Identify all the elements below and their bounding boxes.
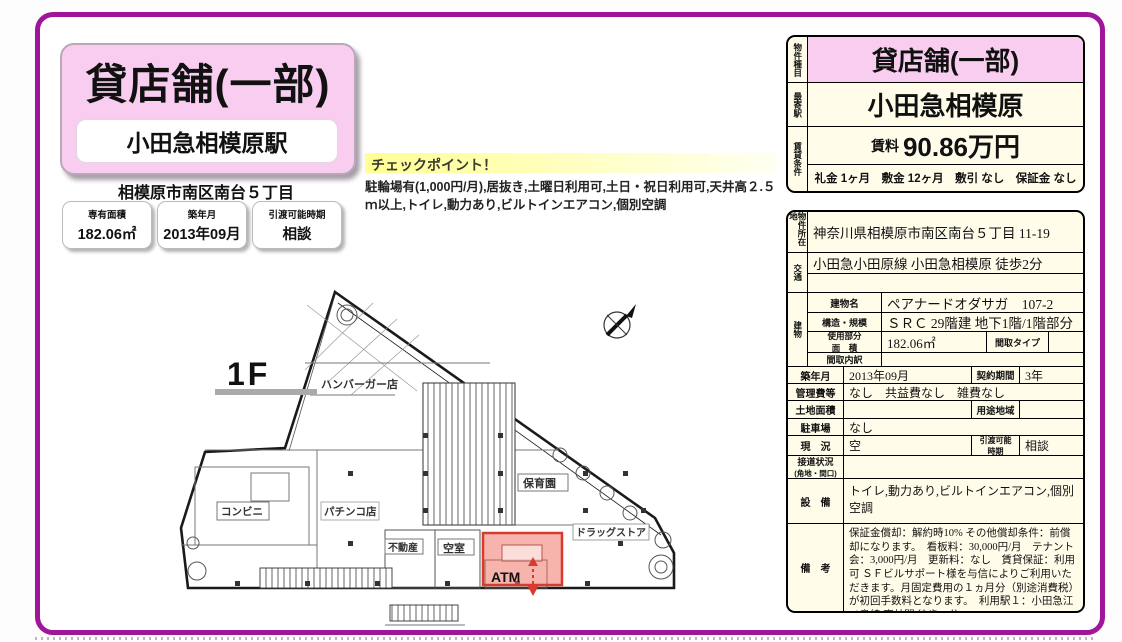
room-label-atm: ATM xyxy=(491,569,520,585)
contract-label: 契約期間 xyxy=(972,367,1020,383)
management-value: なし 共益費なし 雑費なし xyxy=(844,384,1083,400)
stat-handover: 引渡可能時期 相談 xyxy=(252,201,342,249)
zoning-value xyxy=(1020,401,1083,418)
room-label-vacant: 空室 xyxy=(443,541,465,555)
summary-type-label: 物件種目 xyxy=(788,37,808,82)
stat-value: 相談 xyxy=(253,223,341,244)
location-label: 物件所在地 xyxy=(788,212,808,252)
floor-label: 1F xyxy=(227,356,270,392)
stat-value: 182.06㎡ xyxy=(63,223,151,244)
property-type-title: 貸店舗(一部) xyxy=(62,51,354,112)
land-area-label: 土地面積 xyxy=(788,401,844,418)
stat-label: 専有面積 xyxy=(63,207,151,221)
summary-type-value: 貸店舗(一部) xyxy=(808,37,1083,82)
handover-value: 相談 xyxy=(1020,436,1083,455)
stat-label: 引渡可能時期 xyxy=(253,207,341,221)
building-label: 建物 xyxy=(788,293,808,366)
summary-table: 物件種目 貸店舗(一部) 最寄駅 小田急相模原 賃貸条件 賃料 90.86万円 … xyxy=(786,35,1085,193)
parking-label: 駐車場 xyxy=(788,419,844,435)
fees-line: 礼金 1ヶ月 敷金 12ヶ月 敷引 なし 保証金 なし xyxy=(808,164,1083,191)
room-label-hamburger: ハンバーガー店 xyxy=(321,377,398,391)
summary-terms-label: 賃貸条件 xyxy=(788,127,808,191)
stat-label: 築年月 xyxy=(158,207,246,221)
layout-type-label: 間取タイプ xyxy=(987,332,1049,352)
checkpoint-text: 駐輪場有(1,000円/月),居抜き,土曜日利用可,土日・祝日利用可,天井高２.… xyxy=(365,179,787,214)
zoning-label: 用途地域 xyxy=(972,401,1020,418)
remarks-label: 備 考 xyxy=(788,524,844,611)
status-value: 空 xyxy=(844,436,972,455)
building-name-label: 建物名 xyxy=(808,293,882,312)
layout-detail-label: 間取内訳 xyxy=(808,353,882,366)
built-label: 築年月 xyxy=(788,367,844,383)
floorplan-drawing: 1F ハンバーガー店 コンビニ パチンコ店 不動産 空室 ATM 保育園 ドラッ… xyxy=(155,275,785,637)
built-value: 2013年09月 xyxy=(844,367,972,383)
detail-table: 物件所在地 神奈川県相模原市南区南台５丁目 11-19 交通 小田急小田原線 小… xyxy=(786,210,1085,613)
station-name: 小田急相模原駅 xyxy=(127,124,288,158)
structure-label: 構造・規模 xyxy=(808,313,882,331)
parking-value: なし xyxy=(844,419,1083,435)
location-value: 神奈川県相模原市南区南台５丁目 11-19 xyxy=(808,212,1083,252)
remarks-value: 保証金償却：解約時10% その他償却条件：前償却になります。 看板料：30,00… xyxy=(844,524,1083,611)
compass-icon xyxy=(604,304,636,338)
floor-indicator: 1F xyxy=(215,356,317,395)
room-label-drugstore: ドラッグストア xyxy=(576,526,646,539)
contract-value: 3年 xyxy=(1020,367,1083,383)
stat-value: 2013年09月 xyxy=(158,223,246,244)
stat-built-date: 築年月 2013年09月 xyxy=(157,201,247,249)
property-flyer-page: 貸店舗(一部) 小田急相模原駅 相模原市南区南台５丁目 専有面積 182.06㎡… xyxy=(0,0,1122,642)
cutoff-footer-text xyxy=(35,637,1095,640)
stat-floor-area: 専有面積 182.06㎡ xyxy=(62,201,152,249)
room-label-pachinko: パチンコ店 xyxy=(324,505,377,518)
layout-detail-value xyxy=(882,353,1083,366)
status-label: 現 況 xyxy=(788,436,844,455)
used-area-label: 使用部分 xyxy=(827,330,861,342)
handover-label: 引渡可能 xyxy=(980,435,1012,446)
summary-station-label: 最寄駅 xyxy=(788,83,808,126)
summary-station-value: 小田急相模原 xyxy=(808,83,1083,126)
road-value xyxy=(844,456,1083,478)
room-label-nursery: 保育園 xyxy=(522,476,556,490)
property-address: 相模原市南区南台５丁目 xyxy=(60,179,352,203)
property-type-banner: 貸店舗(一部) 小田急相模原駅 xyxy=(60,43,356,175)
building-name-value: ペアナードオダサガ 107-2 xyxy=(882,293,1083,312)
rent-label: 賃料 xyxy=(871,136,899,156)
equipment-value: トイレ,動力あり,ビルトインエアコン,個別空調 xyxy=(844,479,1083,523)
room-label-convenience: コンビニ xyxy=(221,505,263,518)
structure-value: ＳＲＣ 29階建 地下1階/1階部分 xyxy=(882,313,1083,331)
access-label: 交通 xyxy=(788,253,808,292)
layout-type-value xyxy=(1049,332,1083,352)
land-area-value xyxy=(844,401,972,418)
rent-value: 90.86万円 xyxy=(903,127,1020,164)
room-label-realestate: 不動産 xyxy=(388,541,418,554)
station-name-box: 小田急相模原駅 xyxy=(76,119,338,163)
access-line1: 小田急小田原線 小田急相模原 徒歩2分 xyxy=(808,253,1083,274)
used-area-value: 182.06㎡ xyxy=(882,332,987,352)
access-line2 xyxy=(808,274,1083,292)
checkpoint-heading: チェックポイント！ xyxy=(365,153,777,173)
flyer-frame: 貸店舗(一部) 小田急相模原駅 相模原市南区南台５丁目 専有面積 182.06㎡… xyxy=(35,12,1105,635)
management-label: 管理費等 xyxy=(788,384,844,400)
equipment-label: 設 備 xyxy=(788,479,844,523)
road-label: 接道状況 xyxy=(797,455,833,468)
